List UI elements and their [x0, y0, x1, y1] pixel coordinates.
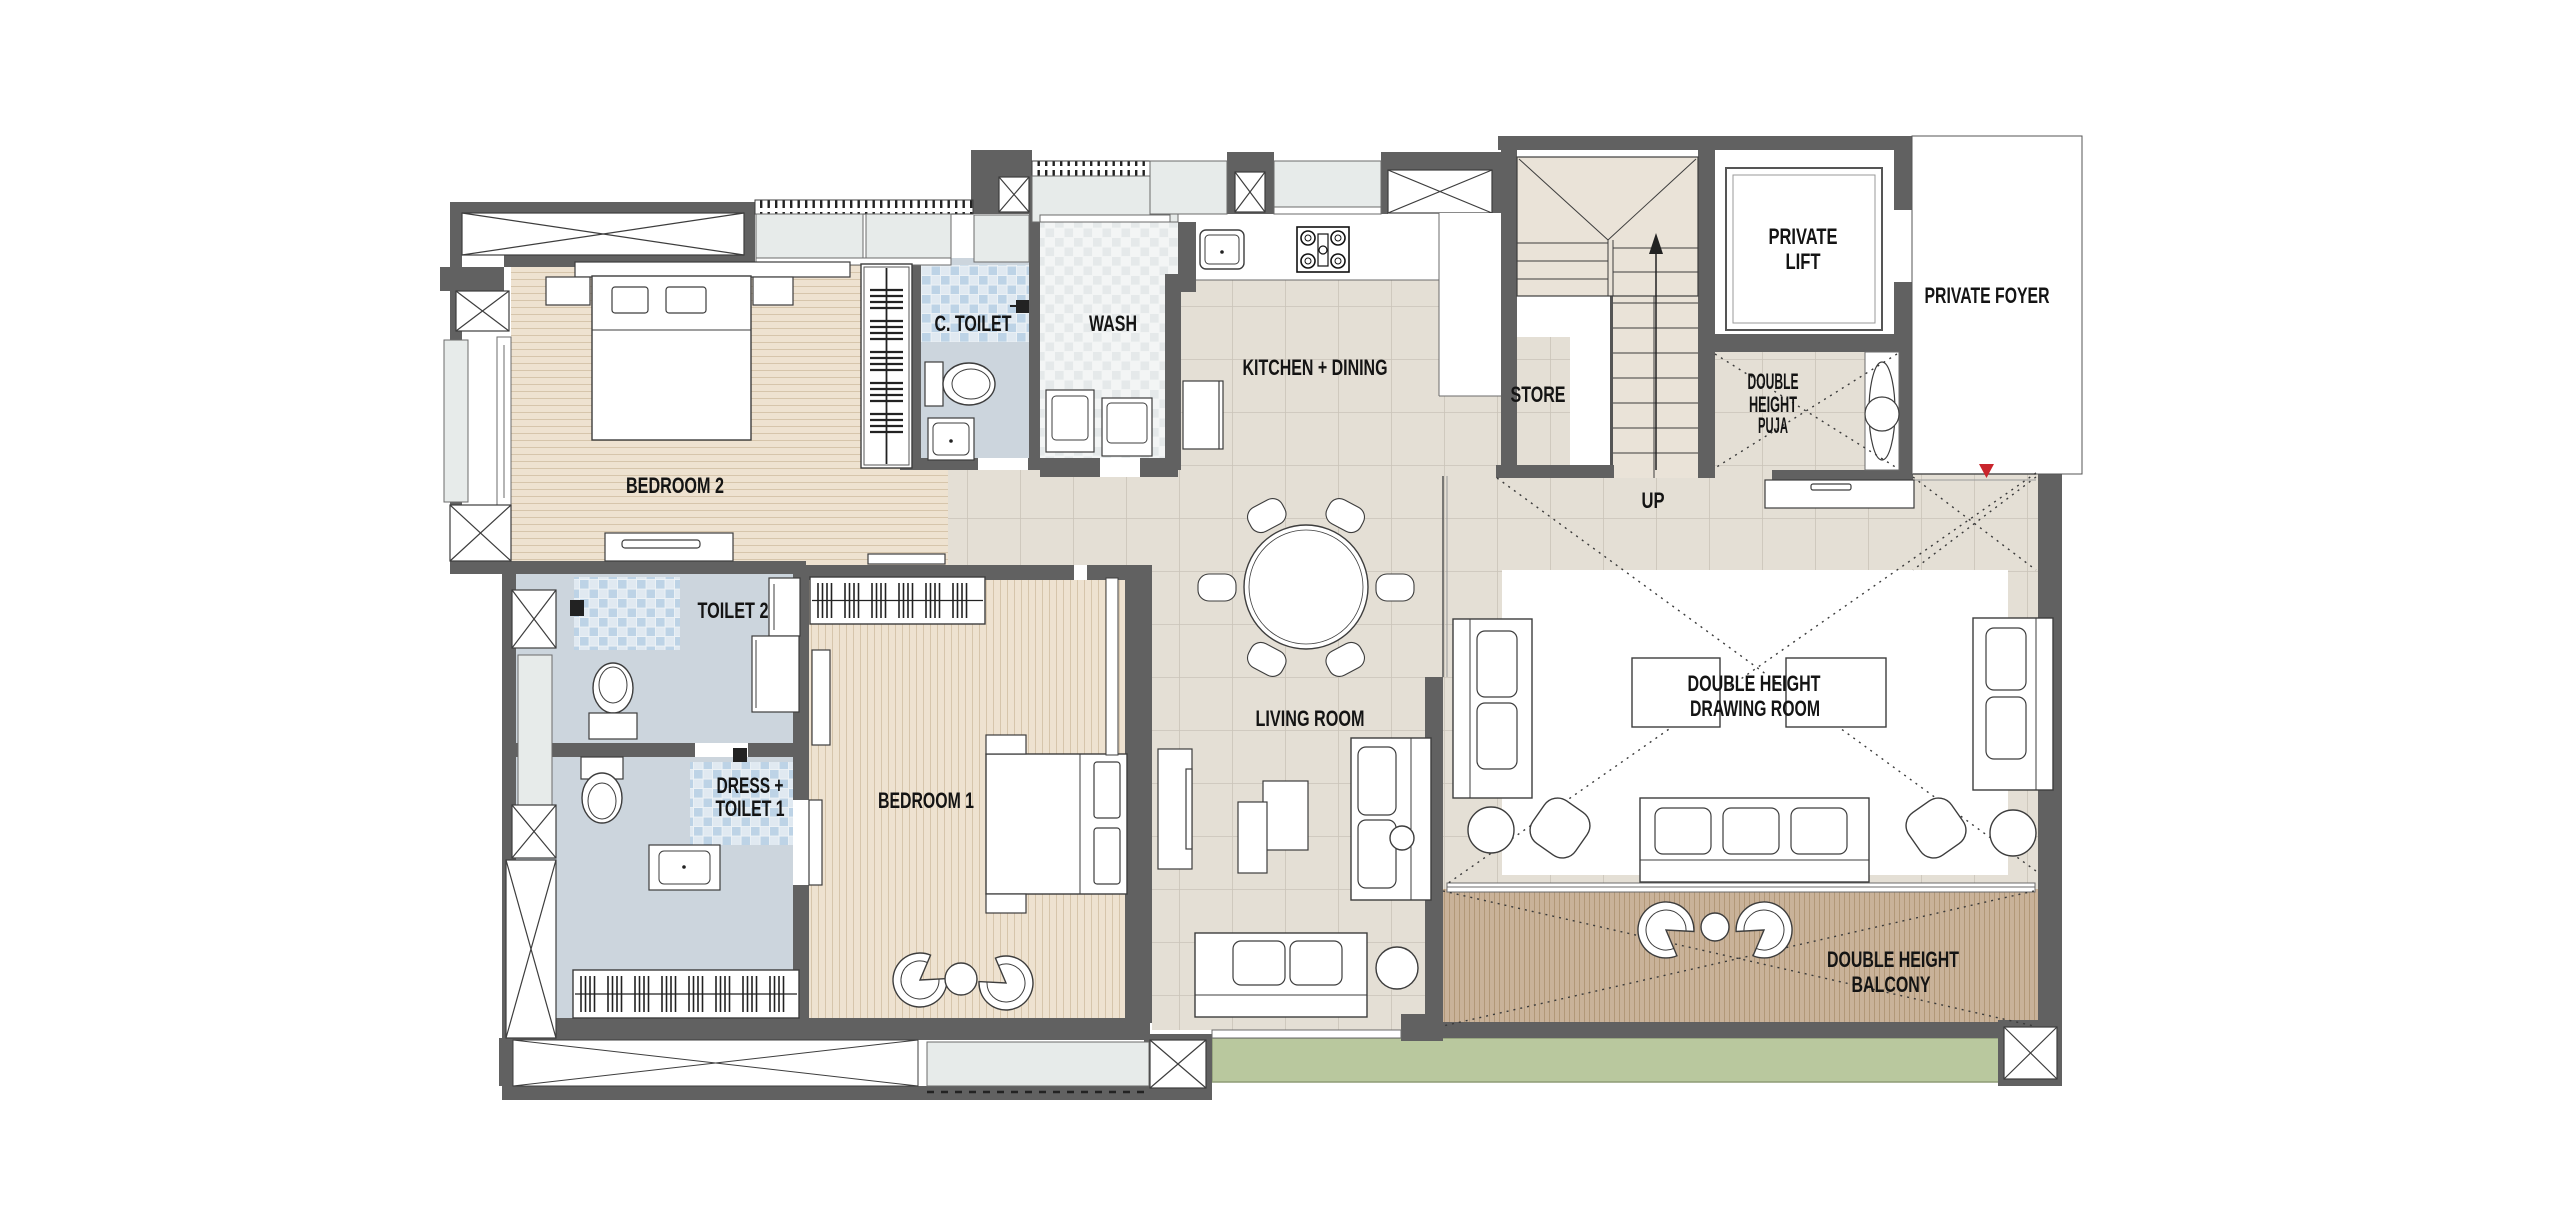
svg-text:C. TOILET: C. TOILET — [935, 311, 1012, 336]
svg-text:DOUBLE HEIGHT: DOUBLE HEIGHT — [1688, 671, 1821, 696]
svg-text:BALCONY: BALCONY — [1852, 972, 1931, 997]
svg-text:DRAWING ROOM: DRAWING ROOM — [1690, 696, 1820, 721]
svg-text:TOILET 1: TOILET 1 — [716, 796, 785, 821]
svg-text:WASH: WASH — [1089, 311, 1137, 336]
svg-text:BEDROOM 1: BEDROOM 1 — [878, 788, 974, 813]
svg-text:BEDROOM 2: BEDROOM 2 — [626, 473, 724, 498]
svg-text:PUJA: PUJA — [1758, 413, 1788, 438]
svg-text:LIVING ROOM: LIVING ROOM — [1256, 706, 1365, 731]
svg-text:PRIVATE: PRIVATE — [1769, 224, 1838, 249]
svg-text:LIFT: LIFT — [1786, 249, 1821, 274]
svg-text:DOUBLE: DOUBLE — [1748, 369, 1799, 394]
svg-text:PRIVATE FOYER: PRIVATE FOYER — [1925, 283, 2050, 308]
svg-text:UP: UP — [1642, 488, 1665, 513]
svg-text:STORE: STORE — [1511, 382, 1566, 407]
svg-text:TOILET 2: TOILET 2 — [698, 598, 769, 623]
svg-text:DRESS +: DRESS + — [717, 773, 784, 798]
svg-text:KITCHEN + DINING: KITCHEN + DINING — [1243, 355, 1388, 380]
svg-text:DOUBLE HEIGHT: DOUBLE HEIGHT — [1827, 947, 1959, 972]
